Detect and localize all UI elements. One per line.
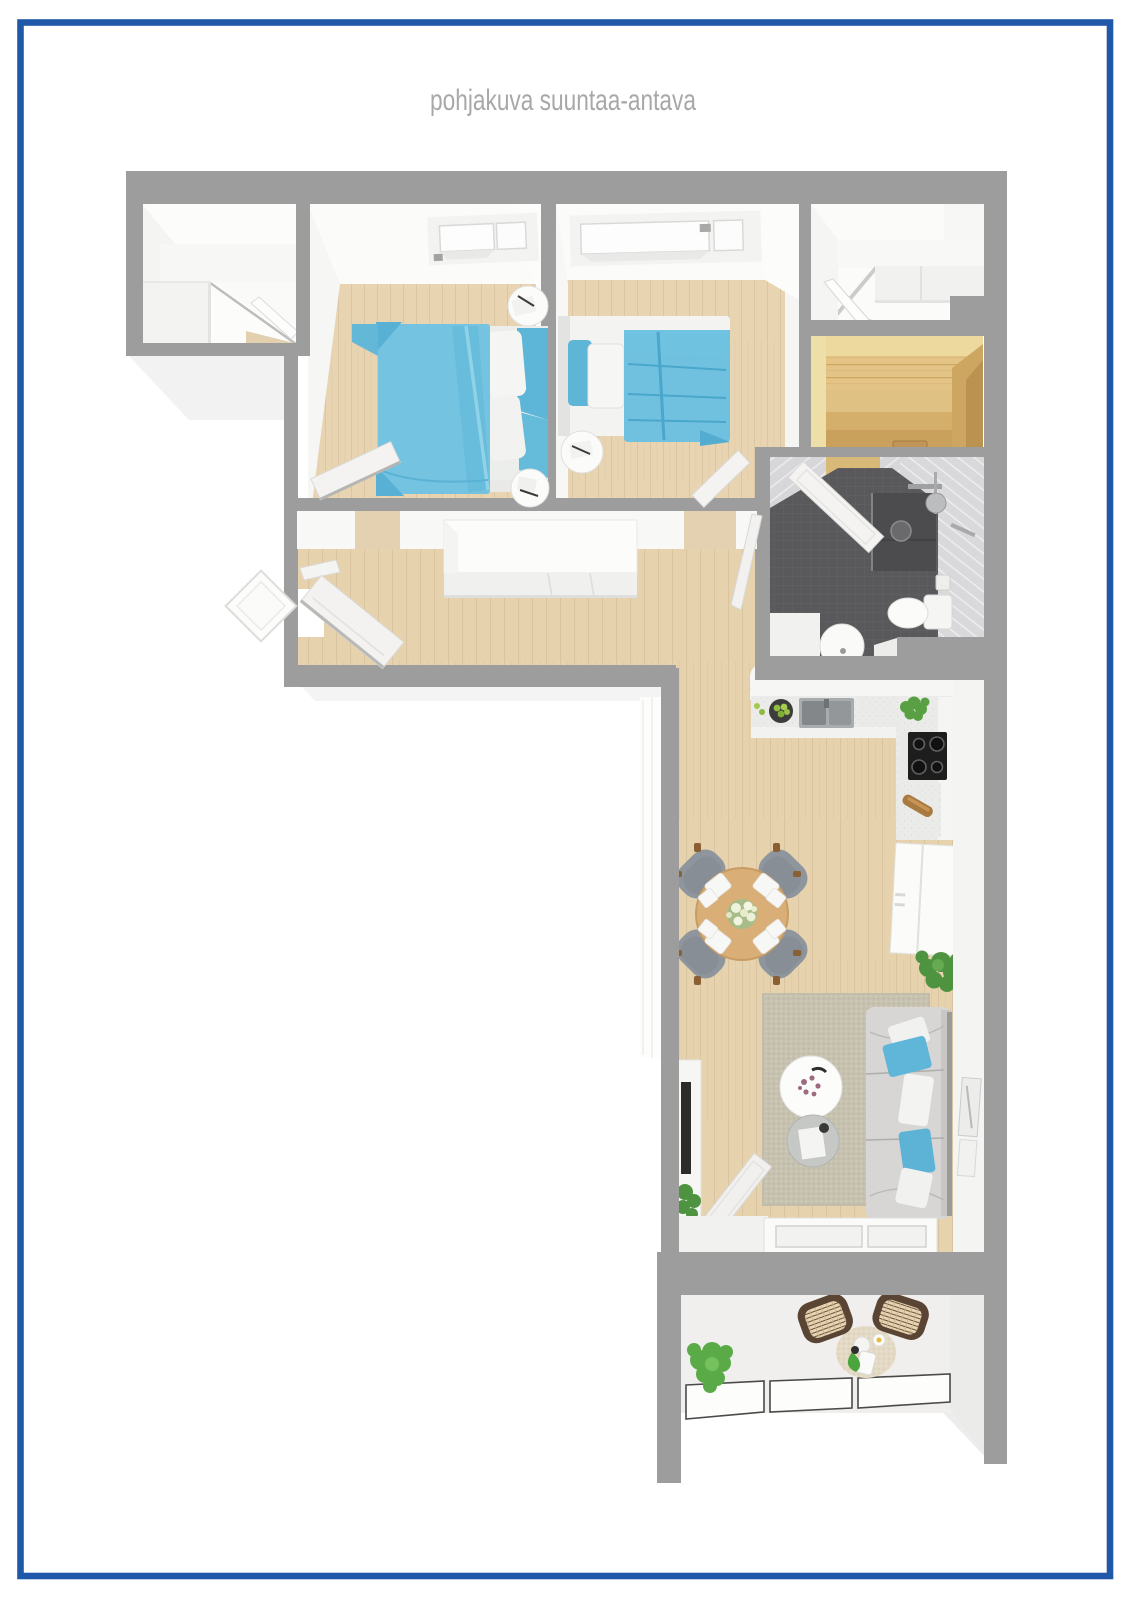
svg-text:pohjakuva suuntaa-antava: pohjakuva suuntaa-antava	[430, 84, 696, 117]
